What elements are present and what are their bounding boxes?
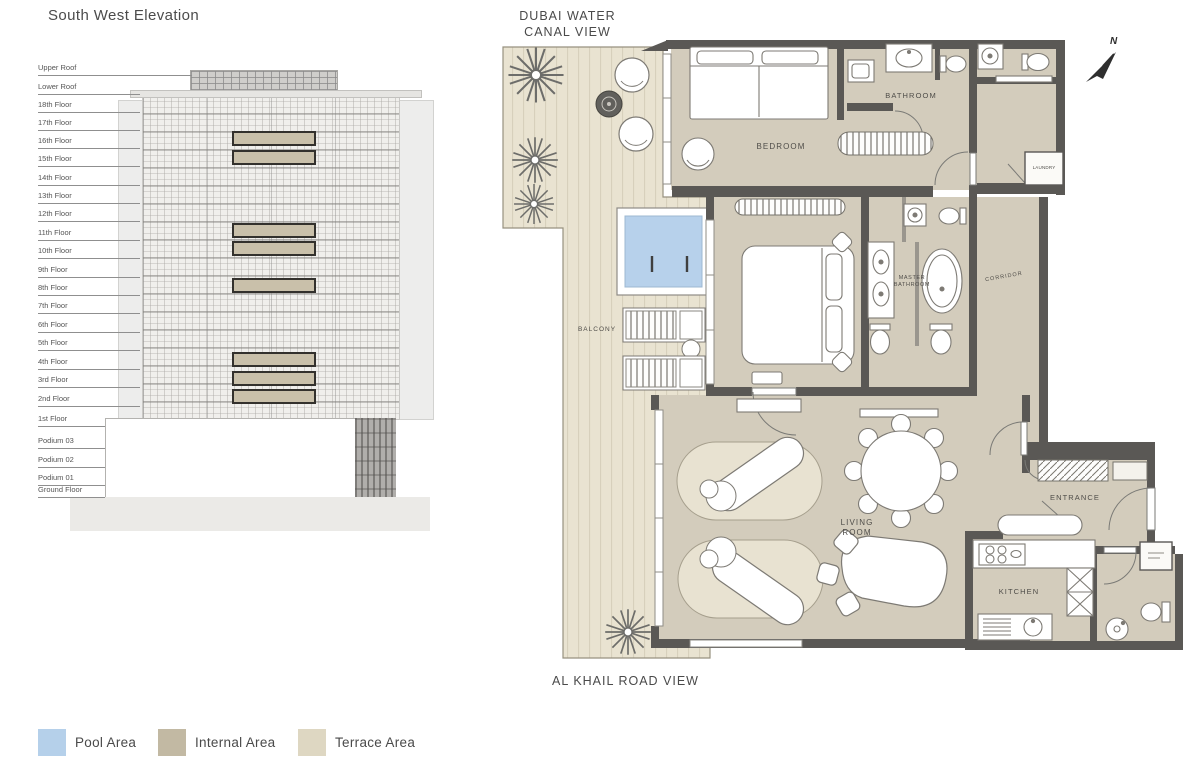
elevation-title: South West Elevation: [48, 7, 199, 24]
floor-row-10: 10th Floor: [38, 246, 140, 259]
floor-row-ground: Ground Floor: [38, 485, 105, 498]
floor-row-3: 3rd Floor: [38, 375, 140, 388]
highlight-11th-floor: [232, 223, 316, 238]
floor-plan-drawing: [490, 28, 1190, 668]
floor-row-7: 7th Floor: [38, 301, 140, 314]
floor-label: 14th Floor: [38, 173, 72, 182]
elevation-lower-roof: [130, 90, 422, 98]
floor-row-9: 9th Floor: [38, 265, 140, 278]
toilet: [940, 56, 946, 72]
duct-shaft: [1140, 542, 1172, 570]
sun-lounger: [623, 308, 705, 342]
floor-label: 2nd Floor: [38, 394, 70, 403]
floor-label: Lower Roof: [38, 82, 76, 91]
highlight-10th-floor: [232, 241, 316, 256]
floor-row-podium2: Podium 02: [38, 455, 105, 468]
dining-table: [861, 431, 941, 511]
floor-label: 3rd Floor: [38, 375, 68, 384]
floor-row-2: 2nd Floor: [38, 394, 140, 407]
floor-label: 9th Floor: [38, 265, 68, 274]
dining-set: [845, 415, 958, 528]
floor-label: 5th Floor: [38, 338, 68, 347]
master-bedroom-window: [706, 220, 714, 384]
legend-item-internal: Internal Area: [158, 729, 275, 756]
pool-area: [617, 208, 710, 295]
entrance-closet: [1038, 460, 1108, 481]
highlight-15th-floor: [232, 150, 316, 165]
floor-row-8: 8th Floor: [38, 283, 140, 296]
compass-north-label: N: [1110, 36, 1117, 47]
floor-label: Upper Roof: [38, 63, 76, 72]
floor-label: Podium 01: [38, 473, 74, 482]
floor-label: Ground Floor: [38, 485, 82, 494]
kitchen-island: [998, 515, 1082, 535]
highlight-2nd-floor: [232, 389, 316, 404]
room-label-bedroom: BEDROOM: [756, 142, 805, 152]
floor-label: 4th Floor: [38, 357, 68, 366]
label-line: ROOM: [842, 528, 871, 537]
chair: [816, 562, 840, 586]
floor-row-5: 5th Floor: [38, 338, 140, 351]
pool-swatch: [38, 729, 66, 756]
floor-row-18: 18th Floor: [38, 100, 140, 113]
room-label-living-room: LIVING ROOM: [841, 518, 874, 538]
toilet: [930, 324, 952, 330]
label-line: LIVING: [841, 518, 874, 527]
elevation-podium: [105, 418, 363, 499]
console-table: [996, 76, 1052, 82]
brochure-page: South West Elevation Upper Roof Lower Ro…: [0, 0, 1200, 762]
toilet: [960, 208, 966, 224]
north-arrow-icon: [1086, 52, 1116, 82]
floor-label: 18th Floor: [38, 100, 72, 109]
chaise: [842, 536, 947, 607]
floor-label: 15th Floor: [38, 154, 72, 163]
terrace-chair: [615, 58, 649, 92]
room-label-laundry: LAUNDRY: [1033, 163, 1056, 173]
room-label-bathroom: BATHROOM: [885, 91, 937, 101]
legend-label: Internal Area: [195, 735, 275, 750]
floor-row-16: 16th Floor: [38, 136, 140, 149]
floor-label: 13th Floor: [38, 191, 72, 200]
side-table: [682, 340, 700, 358]
bench: [752, 372, 782, 384]
floor-row-11: 11th Floor: [38, 228, 140, 241]
room-label-balcony: BALCONY: [578, 325, 616, 335]
legend-label: Terrace Area: [335, 735, 415, 750]
caption-line: AL KHAIL ROAD VIEW: [552, 674, 699, 688]
floor-row-6: 6th Floor: [38, 320, 140, 333]
tv-console: [737, 399, 801, 412]
floor-row-14: 14th Floor: [38, 173, 140, 186]
entrance-cabinet: [1113, 462, 1147, 480]
sun-lounger: [623, 356, 705, 390]
floor-label: 6th Floor: [38, 320, 68, 329]
armchair: [682, 138, 714, 170]
elevation-podium-core: [355, 418, 396, 497]
internal-swatch: [158, 729, 186, 756]
toilet: [870, 324, 890, 330]
floor-plan: BEDROOM BATHROOM LAUNDRY MASTER BATHROOM…: [490, 28, 1190, 668]
view-caption-road: AL KHAIL ROAD VIEW: [528, 674, 723, 688]
floor-row-upper-roof: Upper Roof: [38, 63, 192, 76]
legend-label: Pool Area: [75, 735, 136, 750]
living-room-bottom-window: [690, 640, 802, 647]
highlight-3rd-floor: [232, 371, 316, 386]
floor-row-lower-roof: Lower Roof: [38, 82, 140, 95]
floor-row-1: 1st Floor: [38, 414, 105, 427]
room-label-master-bathroom: MASTER BATHROOM: [894, 275, 930, 289]
legend-item-pool: Pool Area: [38, 729, 136, 756]
terrace-chair: [619, 117, 653, 151]
floor-row-13: 13th Floor: [38, 191, 140, 204]
terrace-swatch: [298, 729, 326, 756]
floor-label: 12th Floor: [38, 209, 72, 218]
toilet: [1162, 602, 1170, 622]
floor-label: 10th Floor: [38, 246, 72, 255]
legend-item-terrace: Terrace Area: [298, 729, 415, 756]
floor-row-podium3: Podium 03: [38, 436, 105, 449]
caption-line: DUBAI WATER: [519, 9, 615, 23]
basin: [1106, 618, 1128, 640]
highlight-16th-floor: [232, 131, 316, 146]
elevation-ground-base: [70, 497, 430, 531]
elevation-right-wing: [397, 100, 434, 420]
floor-row-4: 4th Floor: [38, 357, 140, 370]
room-label-kitchen: KITCHEN: [999, 587, 1040, 597]
floor-label: 16th Floor: [38, 136, 72, 145]
floor-row-17: 17th Floor: [38, 118, 140, 131]
highlight-8th-floor: [232, 278, 316, 293]
room-label-entrance: ENTRANCE: [1050, 493, 1100, 503]
floor-label: 17th Floor: [38, 118, 72, 127]
label-line: BATHROOM: [894, 282, 930, 288]
label-line: MASTER: [899, 275, 926, 281]
highlight-4th-floor: [232, 352, 316, 367]
floor-label: Podium 02: [38, 455, 74, 464]
floor-label: 1st Floor: [38, 414, 67, 423]
floor-label: 8th Floor: [38, 283, 68, 292]
floor-label: Podium 03: [38, 436, 74, 445]
floor-row-12: 12th Floor: [38, 209, 140, 222]
bedroom-window: [663, 54, 671, 184]
floor-label: 11th Floor: [38, 228, 71, 237]
bedroom-wardrobe: [838, 132, 933, 155]
floor-label: 7th Floor: [38, 301, 68, 310]
floor-row-15: 15th Floor: [38, 154, 140, 167]
master-wardrobe: [735, 199, 845, 215]
